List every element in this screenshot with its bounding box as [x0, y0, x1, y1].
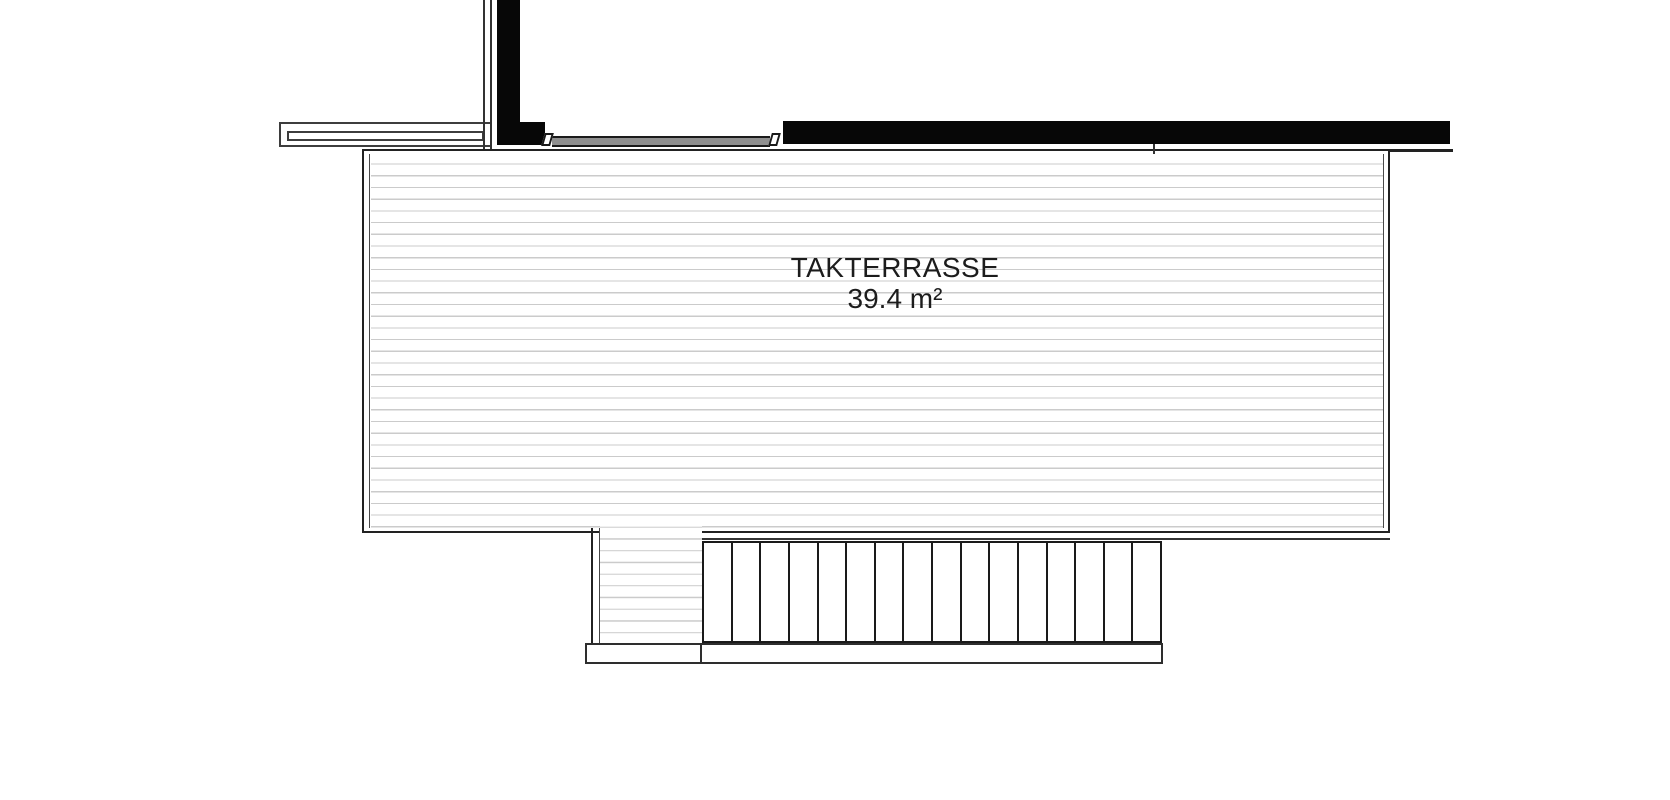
stair-tread: [847, 543, 876, 641]
stair-tread: [962, 543, 991, 641]
stair-tread: [876, 543, 905, 641]
eaves-line: [1390, 149, 1453, 152]
stair-tread: [819, 543, 848, 641]
stair-tread: [1048, 543, 1077, 641]
wall-face-lines: [483, 0, 492, 149]
room-label: TAKTERRASSE 39.4 m²: [745, 252, 1045, 314]
stair-tread: [1133, 543, 1160, 641]
stair-flight: [702, 541, 1162, 643]
door-jamb-right: [768, 133, 781, 146]
guard-railing-inner-rail: [287, 131, 484, 141]
terrace-deck: [362, 149, 1390, 533]
floor-plan-canvas: TAKTERRASSE 39.4 m²: [0, 0, 1670, 800]
stair-tread: [733, 543, 762, 641]
stair-tread: [990, 543, 1019, 641]
deck-edge-inner-line-right: [1383, 154, 1384, 528]
landing-board-hatch: [600, 524, 702, 643]
wall-joint-tick: [1153, 144, 1155, 154]
stair-tread: [904, 543, 933, 641]
deck-edge-inner-line-left: [369, 154, 370, 528]
stair-top-rail-line: [702, 538, 1390, 540]
room-name: TAKTERRASSE: [745, 252, 1045, 283]
stair-tread: [790, 543, 819, 641]
bottom-fascia-divider: [700, 645, 702, 662]
stair-tread: [933, 543, 962, 641]
stair-landing: [600, 524, 702, 643]
exterior-wall-vertical: [497, 0, 520, 145]
landing-left-edge: [591, 528, 600, 643]
sliding-door-glass: [552, 136, 770, 147]
exterior-wall-top: [783, 121, 1450, 144]
guard-railing: [279, 122, 492, 147]
deck-board-hatch: [371, 153, 1383, 529]
stair-tread: [704, 543, 733, 641]
stair-tread: [1076, 543, 1105, 641]
stair-tread: [1105, 543, 1134, 641]
stair-tread: [761, 543, 790, 641]
bottom-fascia-strip: [585, 643, 1163, 664]
room-area: 39.4 m²: [745, 283, 1045, 314]
stair-tread: [1019, 543, 1048, 641]
